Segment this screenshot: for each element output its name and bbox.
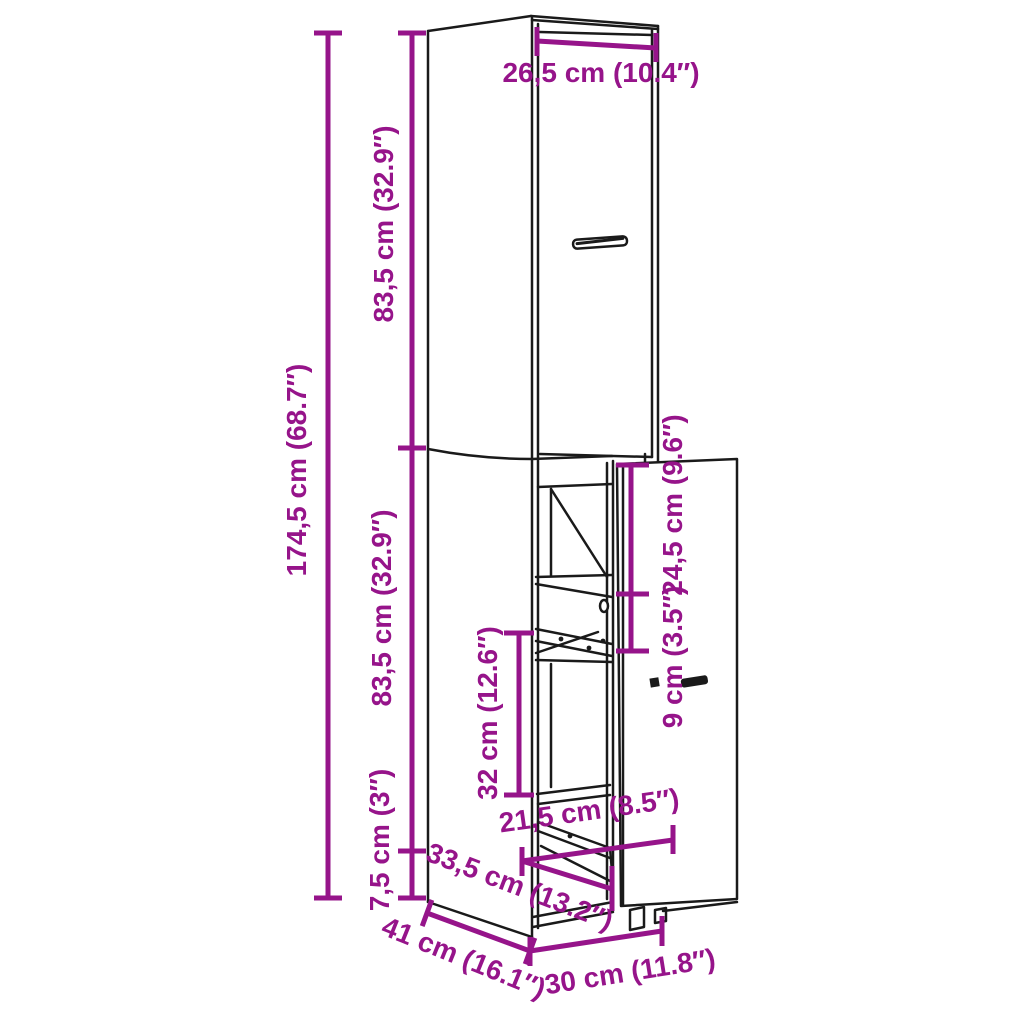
screw-dot: [559, 637, 564, 642]
label-upper-section-height: 83,5 cm (32.9″): [368, 125, 399, 322]
screw-dot: [601, 639, 606, 644]
keyhole: [600, 600, 608, 612]
cabinet-leg: [630, 907, 644, 930]
cabinet-dimension-diagram: 26,5 cm (10.4″) 174,5 cm (68.7″) 83,5 cm…: [0, 0, 1024, 1024]
label-plinth-height: 7,5 cm (3″): [364, 769, 395, 912]
label-middle-compartment-height: 32 cm (12.6″): [472, 626, 503, 800]
screw-dot: [587, 646, 592, 651]
screw-dot: [568, 834, 573, 839]
label-door-width: 26,5 cm (10.4″): [502, 57, 699, 88]
label-lower-section-height: 83,5 cm (32.9″): [366, 509, 397, 706]
label-drawer-front-height: 9 cm (3.5″): [657, 586, 688, 729]
label-total-height: 174,5 cm (68.7″): [281, 364, 312, 577]
label-top-compartment-height: 24,5 cm (9.6″): [657, 414, 688, 596]
